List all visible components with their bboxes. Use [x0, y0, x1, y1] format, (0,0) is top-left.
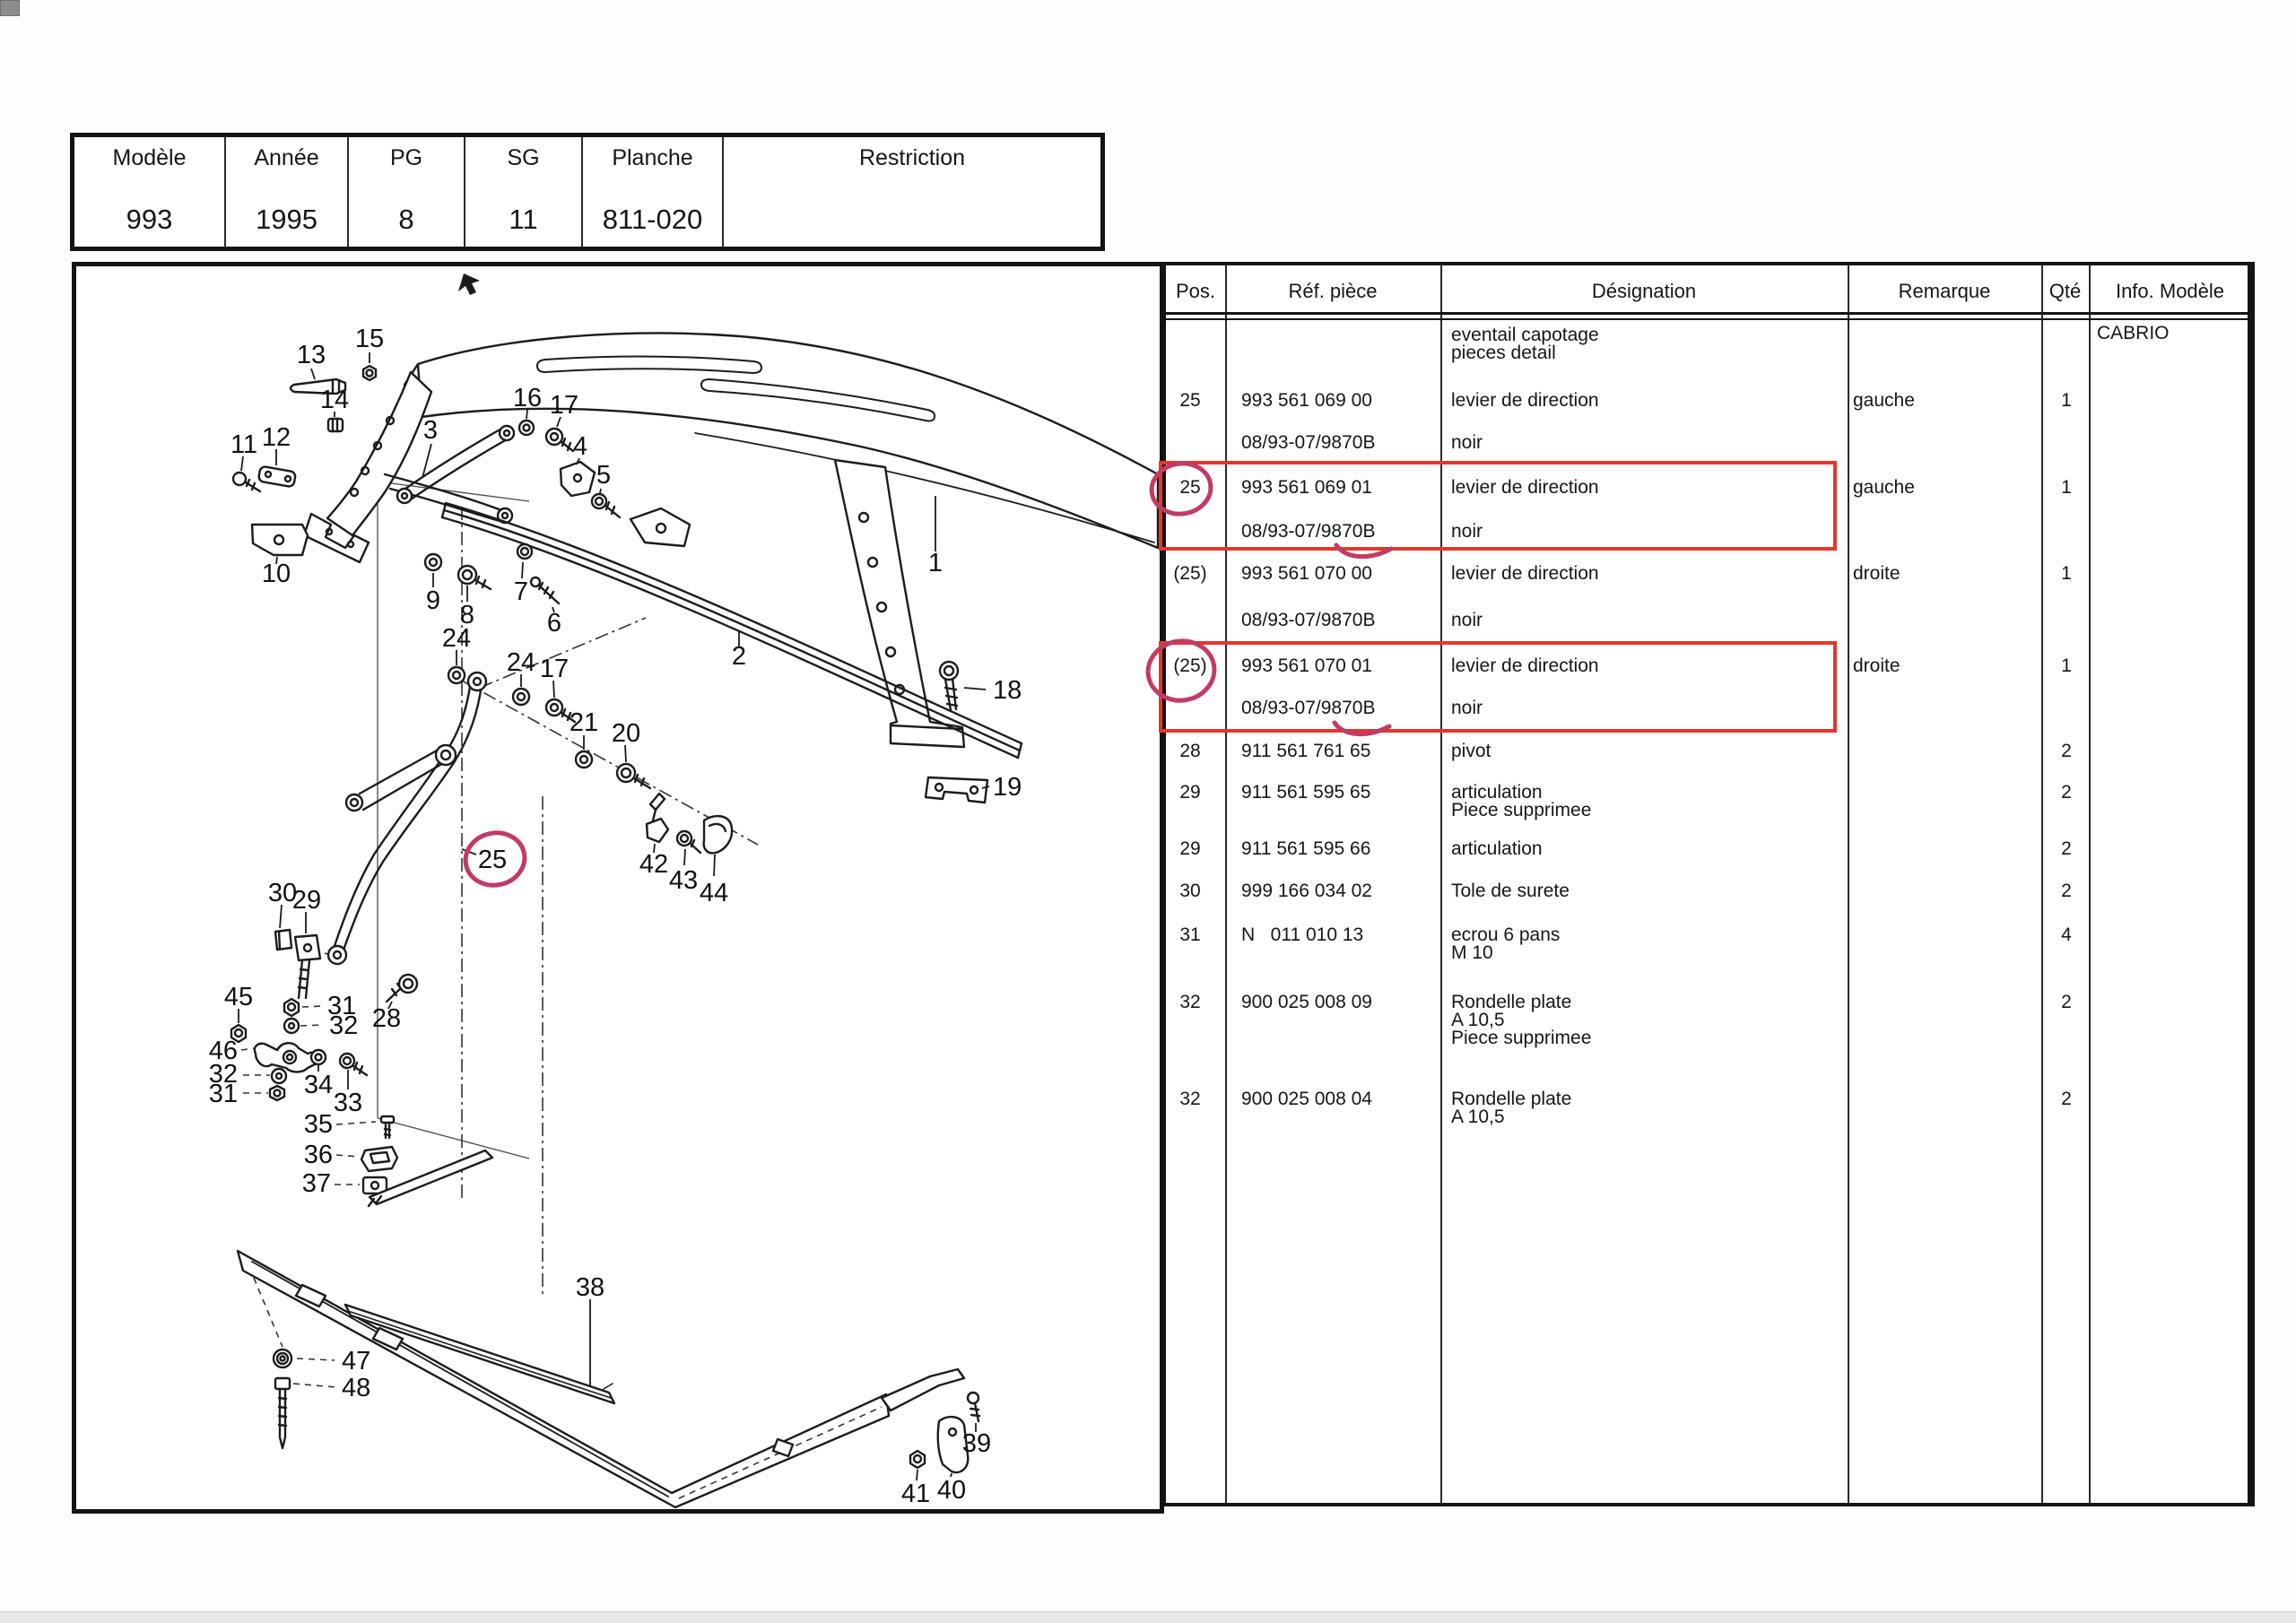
part-label-35: 35	[304, 1110, 333, 1139]
part-label-21: 21	[570, 708, 598, 737]
modele-value: 993	[126, 204, 173, 236]
title-cell-sg: SG 11	[465, 137, 583, 247]
part-label-13: 13	[297, 341, 326, 369]
column-divider	[1440, 265, 1442, 1503]
part-32-washer-b	[272, 1069, 286, 1083]
part-label-47: 47	[342, 1347, 370, 1376]
part-label-20: 20	[612, 719, 640, 748]
scan-bottom-strip	[0, 1611, 2296, 1623]
pg-value: 8	[398, 204, 413, 236]
part-32-washer-a	[284, 1019, 299, 1033]
title-cell-modele: Modèle 993	[74, 137, 226, 247]
part-36-clamp	[361, 1147, 397, 1171]
col-header-info: Info. Modèle	[2089, 280, 2251, 303]
part-label-3: 3	[423, 416, 438, 445]
header-underline-2	[1166, 318, 2248, 320]
part-24-washer-b	[513, 689, 529, 705]
part-39-screw	[968, 1393, 979, 1421]
annee-value: 1995	[256, 204, 317, 236]
modele-label: Modèle	[113, 145, 187, 171]
catalog-page: Modèle 993 Année 1995 PG 8 SG 11 Planche…	[0, 0, 2296, 1623]
part-label-31b: 31	[209, 1080, 238, 1108]
part-20-bolt	[617, 764, 650, 788]
part-29-clamp	[295, 935, 320, 960]
title-cell-pg: PG 8	[349, 137, 465, 247]
part-7-washer	[517, 544, 532, 559]
part-label-11: 11	[230, 430, 257, 459]
part-44-bracket	[704, 816, 732, 853]
part-label-29: 29	[292, 886, 321, 915]
part-28-bolt	[387, 975, 417, 1002]
part-18-bolt	[940, 662, 958, 710]
part-label-12: 12	[262, 423, 291, 452]
part-29-stud	[299, 960, 309, 998]
part-label-2: 2	[732, 642, 746, 671]
part-label-43: 43	[669, 866, 698, 895]
part-label-34: 34	[304, 1071, 333, 1099]
part-42-clamp	[647, 794, 668, 842]
part-label-40: 40	[937, 1476, 966, 1505]
planche-value: 811-020	[603, 204, 702, 236]
col-header-remark: Remarque	[1848, 280, 2041, 303]
part-11-bolt	[233, 473, 260, 491]
part-cap-end	[882, 1369, 964, 1410]
annee-label: Année	[254, 145, 318, 171]
part-31-nut-b	[270, 1086, 284, 1100]
part-label-48: 48	[342, 1374, 370, 1402]
planche-label: Planche	[612, 145, 692, 171]
scan-corner-artifact	[0, 0, 20, 16]
part-33-bolt	[340, 1054, 367, 1075]
part-9-washer	[425, 554, 441, 570]
part-19-plate	[926, 777, 987, 803]
part-label-4: 4	[573, 432, 587, 461]
part-41-nut	[910, 1451, 925, 1468]
part-label-42: 42	[639, 850, 668, 879]
part-label-33: 33	[334, 1089, 362, 1117]
part-label-44: 44	[700, 879, 728, 907]
part-10-bracket	[252, 525, 308, 555]
sg-label: SG	[507, 145, 539, 171]
part-label-14: 14	[320, 386, 349, 414]
part-24-washer-a	[448, 667, 465, 683]
part-label-45: 45	[224, 983, 253, 1011]
part-label-19: 19	[993, 773, 1022, 802]
part-label-15: 15	[355, 325, 384, 353]
part-35-screw	[381, 1116, 394, 1138]
part-16-washer	[519, 421, 534, 435]
col-header-des: Désignation	[1440, 280, 1848, 303]
part-label-10: 10	[262, 560, 291, 588]
part-label-17a: 17	[550, 391, 578, 420]
title-cell-planche: Planche 811-020	[583, 137, 724, 247]
sg-value: 11	[509, 204, 537, 236]
part-mount-bracket	[631, 508, 690, 546]
exploded-diagram: 13 15 14 16 17 3 11 12 4 5 1 10 9 8 7 6 …	[76, 266, 1160, 1509]
part-label-24a: 24	[442, 624, 471, 653]
part-31-nut-a	[284, 999, 299, 1016]
part-5-bolt	[592, 494, 620, 517]
part-8-bolt	[458, 566, 491, 589]
part-label-18: 18	[993, 676, 1022, 705]
part-label-17b: 17	[540, 655, 569, 683]
part-43-bolt	[677, 831, 700, 853]
part-14-bush	[328, 419, 343, 431]
part-48-screw	[275, 1378, 290, 1448]
part-label-32a: 32	[329, 1011, 358, 1040]
part-15-nut	[363, 366, 376, 380]
part-label-41: 41	[901, 1480, 930, 1508]
part-label-1: 1	[928, 549, 943, 577]
part-label-7: 7	[514, 577, 528, 606]
title-cell-annee: Année 1995	[226, 137, 349, 247]
part-label-25: 25	[478, 846, 507, 874]
title-block: Modèle 993 Année 1995 PG 8 SG 11 Planche…	[70, 133, 1105, 251]
restriction-label: Restriction	[859, 145, 965, 171]
part-6-screw	[531, 577, 559, 603]
title-cell-restriction: Restriction	[724, 137, 1100, 247]
column-divider	[1848, 265, 1849, 1503]
part-12-plate	[258, 466, 296, 488]
part-21-washer	[576, 751, 592, 768]
part-47-washer	[274, 1350, 291, 1367]
part-label-24b: 24	[507, 648, 535, 677]
part-46-bracket	[255, 1043, 319, 1072]
col-header-qty: Qté	[2041, 280, 2089, 303]
part-label-37: 37	[302, 1169, 331, 1198]
part-label-28: 28	[372, 1004, 401, 1033]
exploded-diagram-panel: 13 15 14 16 17 3 11 12 4 5 1 10 9 8 7 6 …	[72, 262, 1164, 1514]
part-34-washer	[311, 1050, 326, 1064]
direction-arrow-icon	[458, 273, 480, 295]
header-underline	[1166, 312, 2248, 315]
part-30-clip	[275, 930, 291, 950]
part-4-bracket	[561, 462, 595, 496]
column-divider	[1225, 265, 1227, 1503]
part-label-36: 36	[304, 1141, 333, 1169]
parts-table-panel: Pos. Réf. pièce Désignation Remarque Qté…	[1162, 262, 2255, 1506]
pg-label: PG	[390, 145, 422, 171]
col-header-pos: Pos.	[1166, 280, 1225, 303]
col-header-ref: Réf. pièce	[1225, 280, 1440, 303]
part-label-9: 9	[426, 586, 440, 615]
part-label-16: 16	[513, 384, 542, 412]
part-1-top-bow	[418, 334, 1158, 548]
part-label-39: 39	[962, 1429, 991, 1458]
part-17-bolt-a	[546, 429, 573, 451]
part-label-38: 38	[576, 1273, 604, 1302]
part-label-5: 5	[596, 461, 611, 490]
part-label-6: 6	[547, 609, 561, 638]
